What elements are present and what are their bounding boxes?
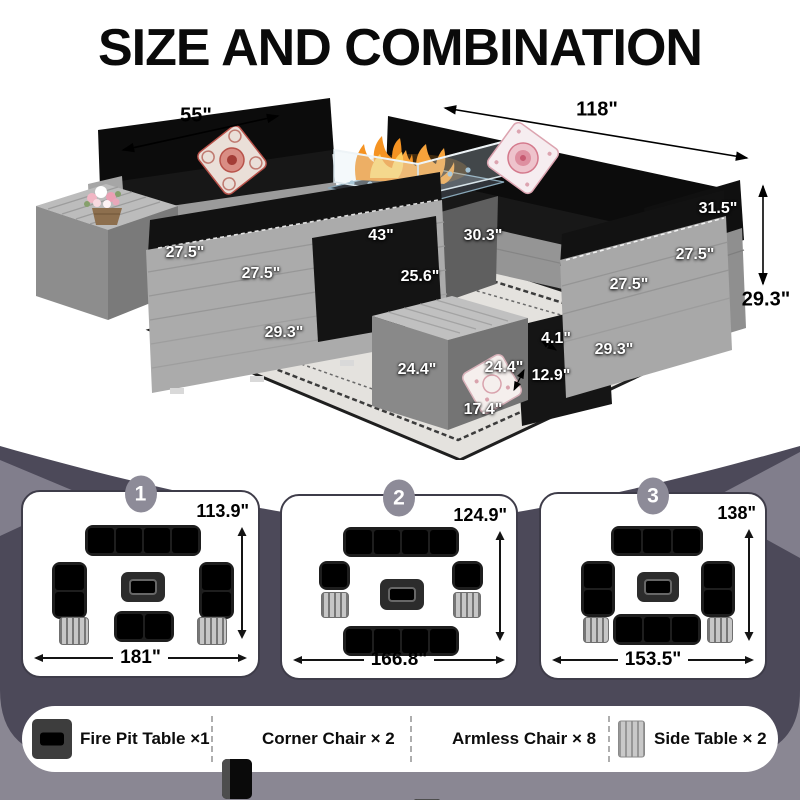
plan-seat [704, 590, 732, 614]
plan-seat [88, 528, 114, 553]
plan-seat [202, 565, 231, 590]
width-dimension-row: 181" [36, 647, 245, 669]
corner-chair-icon [222, 759, 252, 799]
vertical-dimension-arrow [741, 528, 757, 642]
plan-seat [614, 529, 641, 553]
page-title: SIZE AND COMBINATION [0, 18, 800, 78]
plan-sofa-2-seat [581, 561, 615, 617]
plan-seat [117, 614, 143, 639]
vertical-dimension-arrow [492, 530, 508, 642]
plan-sofa-2-seat [701, 561, 735, 617]
plan-seat [643, 529, 670, 553]
plan-fire-pit-top [129, 579, 158, 594]
plan-sofa-3-seat [613, 614, 701, 645]
plan-sofa-1-seat [319, 561, 350, 590]
plan-seat [616, 617, 642, 642]
legend-label: Fire Pit Table ×1 [80, 729, 210, 749]
plan-seat [374, 530, 400, 554]
plan-sofa-2-seat [114, 611, 174, 642]
plan-sofa-4-seat [85, 525, 201, 556]
plan-side-table [321, 592, 349, 618]
plan-seat [55, 592, 84, 617]
plan-side-table [59, 617, 89, 645]
infographic-page: SIZE AND COMBINATION 55"118"29.3"31.5"43… [0, 0, 800, 800]
plan-sofa-1-seat [452, 561, 483, 590]
legend-separator [211, 716, 213, 762]
plan-fire-pit-table [637, 572, 679, 602]
card-number-badge: 1 [125, 476, 157, 513]
plan-seat [455, 564, 480, 587]
plan-seat [402, 530, 428, 554]
plan-seat [55, 565, 84, 590]
legend-label: Corner Chair × 2 [262, 729, 395, 749]
width-dimension-row: 166.8" [295, 649, 503, 671]
legend-separator [608, 716, 610, 762]
plan-sofa-2-seat [199, 562, 234, 619]
plan-fire-pit-top [644, 579, 672, 594]
plan-seat [202, 592, 231, 617]
plan-seat [145, 614, 171, 639]
plan-fire-pit-top [388, 587, 417, 603]
plan-sofa-3-seat [611, 526, 703, 556]
plan-seat [673, 529, 700, 553]
width-dimension-label: 181" [120, 647, 161, 669]
plan-seat [644, 617, 670, 642]
plan-seat [704, 564, 732, 588]
plan-seat [584, 590, 612, 614]
arrow-line-left [295, 659, 364, 661]
plan-fire-pit-table [121, 572, 165, 602]
vertical-dimension-arrow [234, 526, 250, 640]
width-dimension-row: 153.5" [554, 649, 752, 671]
plan-seat [144, 528, 170, 553]
plan-seat [672, 617, 698, 642]
arrow-line-right [688, 659, 752, 661]
plan-side-table [197, 617, 227, 645]
arrow-line-left [36, 657, 113, 659]
depth-dimension-label: 124.9" [453, 505, 507, 526]
depth-dimension-label: 113.9" [196, 501, 249, 522]
legend-bar: Fire Pit Table ×1Corner Chair × 2Armless… [22, 706, 778, 772]
arrow-line-left [554, 659, 618, 661]
plan-sofa-4-seat [343, 527, 459, 557]
furniture-scene-svg [0, 88, 800, 460]
depth-dimension-label: 138" [717, 503, 756, 524]
plan-side-table [453, 592, 481, 618]
plan-side-table [707, 617, 733, 643]
plan-seat [116, 528, 142, 553]
combination-card: 124.9" 166.8" [280, 494, 518, 680]
plan-side-table [583, 617, 609, 643]
arrow-line-right [168, 657, 245, 659]
plan-sofa-2-seat [52, 562, 87, 619]
combination-card: 113.9" 181" [21, 490, 260, 678]
plan-fire-pit-table [380, 579, 424, 610]
arrow-line-right [434, 659, 503, 661]
plan-seat [584, 564, 612, 588]
plan-seat [430, 530, 456, 554]
fire-pit-table-icon [32, 719, 72, 759]
card-number-badge: 2 [383, 480, 415, 517]
combination-card: 138" 153.5" [539, 492, 767, 680]
plan-seat [346, 530, 372, 554]
legend-label: Side Table × 2 [654, 729, 767, 749]
card-number-badge: 3 [637, 478, 669, 515]
side-table-icon [618, 721, 645, 758]
legend-label: Armless Chair × 8 [452, 729, 596, 749]
legend-separator [410, 716, 412, 762]
plan-seat [172, 528, 198, 553]
plan-seat [322, 564, 347, 587]
width-dimension-label: 166.8" [371, 649, 428, 671]
width-dimension-label: 153.5" [625, 649, 682, 671]
